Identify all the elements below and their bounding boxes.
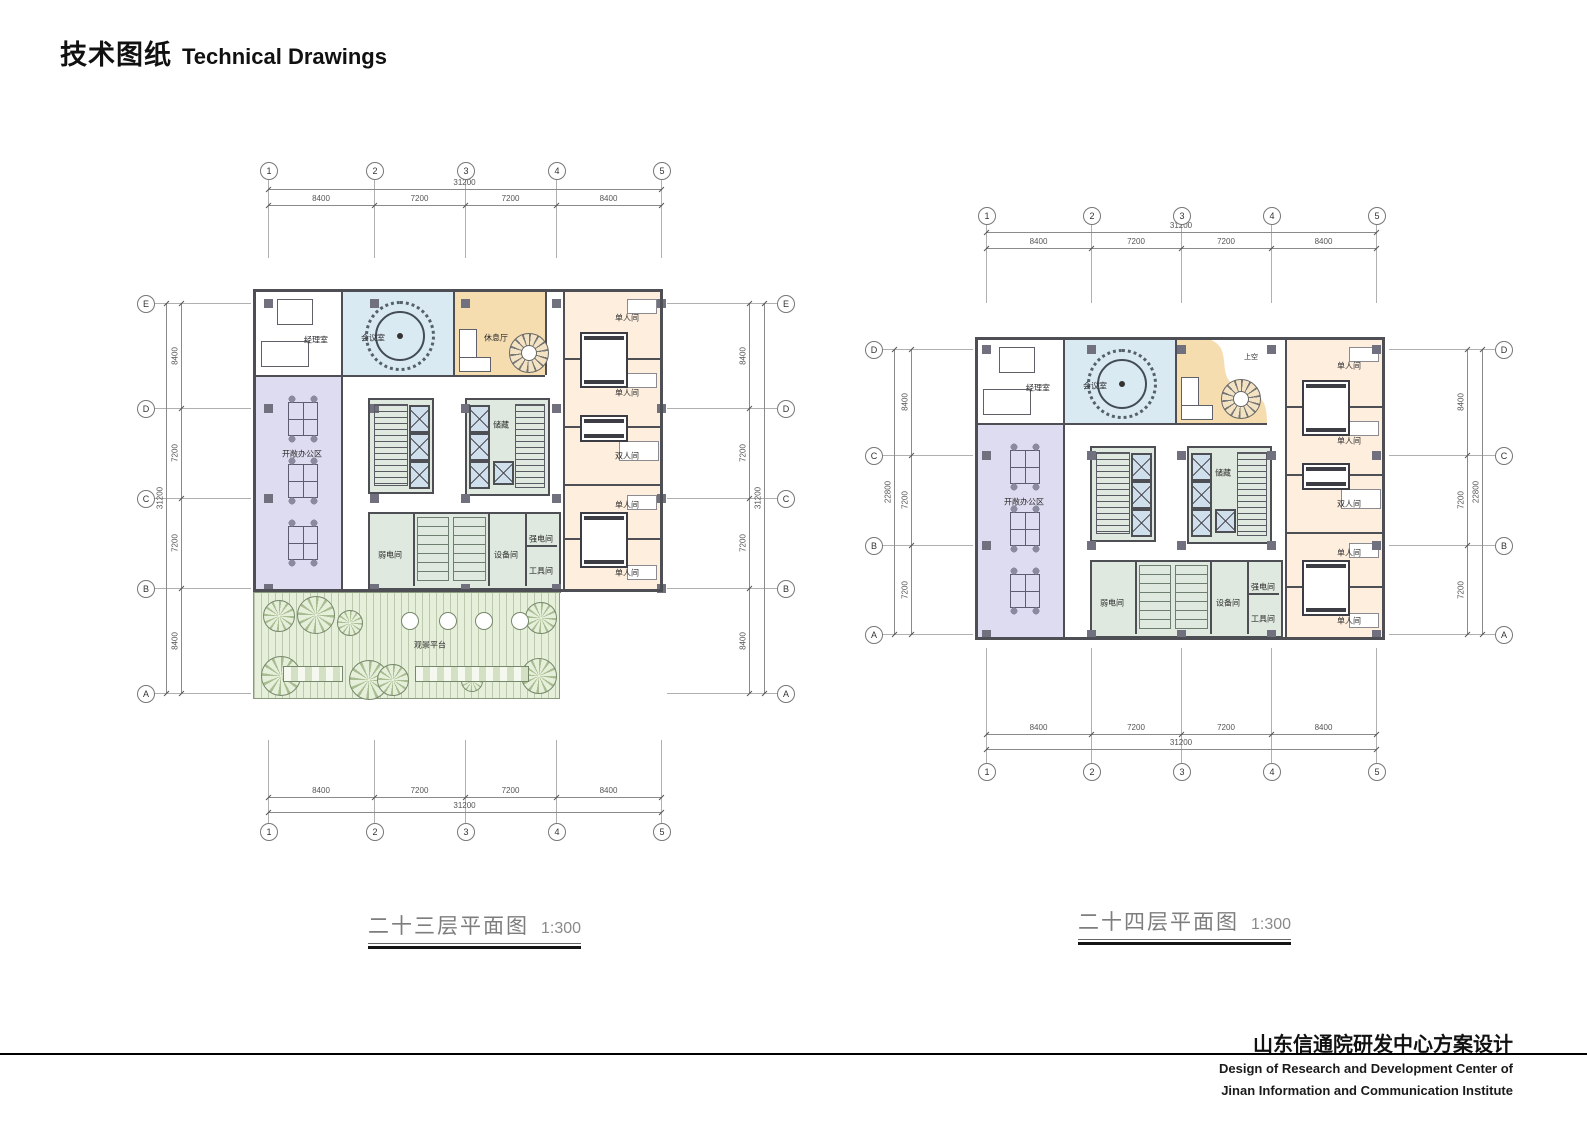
caption-floor24-title: 二十四层平面图 xyxy=(1078,911,1239,934)
spiral-stair xyxy=(509,333,549,373)
grid-line xyxy=(1376,223,1377,303)
toilet-stalls xyxy=(417,517,449,581)
page-title-en: Technical Drawings xyxy=(182,44,387,70)
grid-bubble: B xyxy=(137,580,155,598)
dim-total-label: 31200 xyxy=(156,487,165,509)
grid-bubble: C xyxy=(865,447,883,465)
caption-underline-thick xyxy=(368,946,581,949)
elevator xyxy=(409,461,430,489)
grid-line xyxy=(556,740,557,823)
drawing-sheet: 技术图纸 Technical Drawings 二十三层平面图1:300 二十四… xyxy=(0,0,1587,1122)
grid-bubble: B xyxy=(1495,537,1513,555)
grid-line xyxy=(153,303,251,304)
dim-total-label: 31200 xyxy=(754,487,763,509)
dim-label: 8400 xyxy=(1030,723,1048,732)
grid-line xyxy=(1181,223,1182,303)
dim-label: 8400 xyxy=(1315,237,1333,246)
tree xyxy=(377,664,409,696)
tree xyxy=(525,602,557,634)
page-header: 技术图纸 Technical Drawings xyxy=(60,33,387,72)
caption-floor23-title: 二十三层平面图 xyxy=(368,915,529,938)
terrace-table xyxy=(439,612,457,630)
workstation-cluster xyxy=(1005,505,1045,553)
grid-line xyxy=(465,740,466,823)
dim-total-label: 31200 xyxy=(453,801,475,810)
dim-label: 7200 xyxy=(171,534,180,552)
dim-label: 7200 xyxy=(1217,723,1235,732)
grid-bubble: 2 xyxy=(1083,763,1101,781)
grid-line xyxy=(1389,349,1495,350)
room-label-weak-electric: 弱电间 xyxy=(1100,598,1124,609)
grid-bubble: 3 xyxy=(1173,207,1191,225)
room-label-single-room: 单人间 xyxy=(615,388,639,399)
dim-label: 7200 xyxy=(502,786,520,795)
grid-bubble: 5 xyxy=(1368,763,1386,781)
grid-bubble: A xyxy=(137,685,155,703)
room-label-meeting-room: 会议室 xyxy=(361,333,385,344)
grid-bubble: E xyxy=(137,295,155,313)
dim-line xyxy=(268,812,661,813)
room-label-double-room: 双人间 xyxy=(1337,499,1361,510)
grid-bubble: 2 xyxy=(366,823,384,841)
elevator xyxy=(1191,509,1212,537)
terrace-table xyxy=(511,612,529,630)
room-label-open-office: 开敞办公区 xyxy=(1004,497,1044,508)
workstation-cluster xyxy=(283,519,323,567)
dim-label: 7200 xyxy=(1217,237,1235,246)
grid-line xyxy=(1271,648,1272,763)
tree xyxy=(297,596,335,634)
dim-label: 8400 xyxy=(171,347,180,365)
grid-bubble: 2 xyxy=(366,162,384,180)
dim-label: 7200 xyxy=(1127,723,1145,732)
caption-floor24-scale: 1:300 xyxy=(1251,916,1291,933)
grid-line xyxy=(153,693,251,694)
dim-label: 7200 xyxy=(739,534,748,552)
dim-label: 8400 xyxy=(600,194,618,203)
room-label-single-room: 单人间 xyxy=(1337,436,1361,447)
dim-line xyxy=(1467,349,1468,634)
grid-line xyxy=(667,408,777,409)
toilet-stalls xyxy=(1175,565,1208,629)
grid-line xyxy=(153,498,251,499)
grid-bubble: 1 xyxy=(260,823,278,841)
room-label-void-above: 上空 xyxy=(1244,352,1258,362)
dim-label: 8400 xyxy=(1030,237,1048,246)
room-label-storage: 储藏 xyxy=(493,420,509,431)
toilet-stalls xyxy=(453,517,486,581)
footer-rule xyxy=(0,1053,1587,1055)
elevator xyxy=(1131,509,1152,537)
elevator xyxy=(469,405,490,433)
dim-label: 7200 xyxy=(1457,491,1466,509)
caption-underline-thick xyxy=(1078,942,1291,945)
grid-bubble: D xyxy=(137,400,155,418)
room-label-lounge: 休息厅 xyxy=(484,333,508,344)
dim-line xyxy=(911,349,912,634)
stairs xyxy=(1096,452,1130,534)
room-label-meeting-room: 会议室 xyxy=(1083,381,1107,392)
grid-line xyxy=(1091,648,1092,763)
dim-label: 7200 xyxy=(901,491,910,509)
toilet-stalls xyxy=(1139,565,1171,629)
grid-bubble: 3 xyxy=(1173,763,1191,781)
room-label-strong-electric: 强电间 xyxy=(1251,582,1275,593)
elevator xyxy=(1191,453,1212,481)
dim-label: 7200 xyxy=(411,194,429,203)
bathroom-pod xyxy=(1302,380,1350,436)
terrace-table xyxy=(401,612,419,630)
dim-line xyxy=(986,232,1376,233)
grid-bubble: 4 xyxy=(548,823,566,841)
dim-line xyxy=(986,749,1376,750)
grid-line xyxy=(556,178,557,258)
dim-label: 8400 xyxy=(600,786,618,795)
room-label-strong-electric: 强电间 xyxy=(529,534,553,545)
tree xyxy=(337,610,363,636)
grid-bubble: C xyxy=(777,490,795,508)
room-label-viewing-deck: 观景平台 xyxy=(414,640,446,651)
dim-total-label: 31200 xyxy=(1170,738,1192,747)
bathroom-pod xyxy=(580,512,628,568)
bathroom-pod xyxy=(580,332,628,388)
stairs xyxy=(374,404,408,486)
room-label-equipment: 设备间 xyxy=(1216,598,1240,609)
dim-line xyxy=(1482,349,1483,634)
room-label-tool: 工具间 xyxy=(529,566,553,577)
bathroom-pod xyxy=(580,415,628,442)
caption-underline-thin xyxy=(1078,939,1291,940)
grid-line xyxy=(153,408,251,409)
dim-label: 7200 xyxy=(411,786,429,795)
room-label-single-room: 单人间 xyxy=(615,313,639,324)
grid-bubble: D xyxy=(777,400,795,418)
grid-line xyxy=(1091,223,1092,303)
grid-bubble: 4 xyxy=(1263,763,1281,781)
elevator xyxy=(1215,509,1236,533)
dim-label: 8400 xyxy=(739,632,748,650)
grid-bubble: C xyxy=(1495,447,1513,465)
grid-line xyxy=(667,693,777,694)
grid-bubble: 1 xyxy=(978,763,996,781)
elevator xyxy=(409,433,430,461)
grid-bubble: E xyxy=(777,295,795,313)
dim-line xyxy=(166,303,167,693)
bathroom-pod xyxy=(1302,560,1350,616)
room-label-manager-office: 经理室 xyxy=(1026,383,1050,394)
room-label-weak-electric: 弱电间 xyxy=(378,550,402,561)
elevator xyxy=(493,461,514,485)
elevator xyxy=(469,433,490,461)
page-title-zh: 技术图纸 xyxy=(60,33,172,72)
elevator xyxy=(1191,481,1212,509)
terrace-table xyxy=(475,612,493,630)
caption-floor24: 二十四层平面图1:300 xyxy=(1078,906,1291,945)
room-label-single-room: 单人间 xyxy=(615,568,639,579)
dim-line xyxy=(894,349,895,634)
stairs xyxy=(1237,452,1267,536)
dim-label: 8400 xyxy=(739,347,748,365)
caption-underline-thin xyxy=(368,943,581,944)
room-label-tool: 工具间 xyxy=(1251,614,1275,625)
dim-label: 8400 xyxy=(171,632,180,650)
room-label-double-room: 双人间 xyxy=(615,451,639,462)
dim-label: 7200 xyxy=(502,194,520,203)
grid-line xyxy=(374,178,375,258)
room-label-equipment: 设备间 xyxy=(494,550,518,561)
grid-bubble: A xyxy=(777,685,795,703)
workstation-cluster xyxy=(1005,567,1045,615)
grid-bubble: 4 xyxy=(1263,207,1281,225)
terrace-bench xyxy=(415,666,529,682)
grid-line xyxy=(1389,634,1495,635)
room-label-single-room: 单人间 xyxy=(615,500,639,511)
caption-floor23-scale: 1:300 xyxy=(541,920,581,937)
dim-label: 8400 xyxy=(312,786,330,795)
elevator xyxy=(409,405,430,433)
tree xyxy=(263,600,295,632)
workstation-cluster xyxy=(1005,443,1045,491)
dim-line xyxy=(764,303,765,693)
stairs xyxy=(515,404,545,488)
bathroom-pod xyxy=(1302,463,1350,490)
grid-bubble: 1 xyxy=(260,162,278,180)
caption-floor23: 二十三层平面图1:300 xyxy=(368,910,581,949)
dim-total-label: 22800 xyxy=(884,480,893,502)
dim-label: 8400 xyxy=(901,393,910,411)
grid-line xyxy=(465,178,466,258)
elevator xyxy=(1131,453,1152,481)
grid-bubble: D xyxy=(865,341,883,359)
grid-line xyxy=(1376,648,1377,763)
footer-project-title-en-line1: Design of Research and Development Cente… xyxy=(1219,1061,1513,1076)
grid-bubble: 4 xyxy=(548,162,566,180)
dim-label: 7200 xyxy=(739,444,748,462)
dim-label: 7200 xyxy=(901,581,910,599)
dim-label: 7200 xyxy=(171,444,180,462)
elevator xyxy=(469,461,490,489)
room-label-single-room: 单人间 xyxy=(1337,616,1361,627)
grid-line xyxy=(986,223,987,303)
dim-label: 7200 xyxy=(1457,581,1466,599)
room-label-single-room: 单人间 xyxy=(1337,361,1361,372)
grid-line xyxy=(986,648,987,763)
dim-label: 8400 xyxy=(1315,723,1333,732)
grid-bubble: 5 xyxy=(653,162,671,180)
grid-line xyxy=(1271,223,1272,303)
elevator xyxy=(1131,481,1152,509)
caption-floor23-textline: 二十三层平面图1:300 xyxy=(368,910,581,940)
footer-project-title-en-line2: Jinan Information and Communication Inst… xyxy=(1221,1083,1513,1098)
workstation-cluster xyxy=(283,457,323,505)
dim-total-label: 22800 xyxy=(1472,480,1481,502)
caption-floor24-textline: 二十四层平面图1:300 xyxy=(1078,906,1291,936)
grid-bubble: B xyxy=(777,580,795,598)
grid-bubble: A xyxy=(865,626,883,644)
grid-bubble: 3 xyxy=(457,162,475,180)
grid-bubble: 5 xyxy=(1368,207,1386,225)
room-label-manager-office: 经理室 xyxy=(304,335,328,346)
grid-bubble: 1 xyxy=(978,207,996,225)
grid-bubble: A xyxy=(1495,626,1513,644)
grid-line xyxy=(1389,455,1495,456)
grid-bubble: 3 xyxy=(457,823,475,841)
dim-label: 8400 xyxy=(312,194,330,203)
grid-bubble: C xyxy=(137,490,155,508)
dim-line xyxy=(268,189,661,190)
grid-bubble: D xyxy=(1495,341,1513,359)
grid-line xyxy=(153,588,251,589)
grid-bubble: 2 xyxy=(1083,207,1101,225)
room-label-storage: 储藏 xyxy=(1215,468,1231,479)
terrace-bench xyxy=(283,666,343,682)
workstation-cluster xyxy=(283,395,323,443)
room-label-single-room: 单人间 xyxy=(1337,548,1361,559)
grid-line xyxy=(1389,545,1495,546)
spiral-stair xyxy=(1221,379,1261,419)
grid-bubble: 5 xyxy=(653,823,671,841)
grid-line xyxy=(667,303,777,304)
grid-bubble: B xyxy=(865,537,883,555)
dim-label: 7200 xyxy=(1127,237,1145,246)
grid-line xyxy=(667,588,777,589)
room-label-open-office: 开敞办公区 xyxy=(282,449,322,460)
dim-label: 8400 xyxy=(1457,393,1466,411)
grid-line xyxy=(374,740,375,823)
